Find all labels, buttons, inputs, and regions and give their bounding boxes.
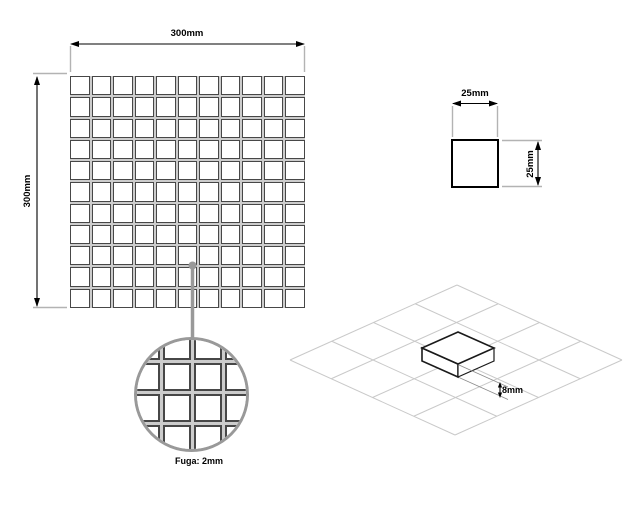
tile-cell (178, 119, 198, 138)
tile-cell (156, 140, 176, 159)
tile-cell (92, 182, 112, 201)
tile-cell (199, 97, 219, 116)
tile-cell (156, 204, 176, 223)
tile-cell (92, 97, 112, 116)
tile-cell (113, 119, 133, 138)
tile-cell (178, 289, 198, 308)
tile-cell (113, 267, 133, 286)
tile-cell (285, 182, 305, 201)
tile-cell (178, 204, 198, 223)
tile-cell (199, 140, 219, 159)
tile-height-label: 25mm (525, 134, 537, 194)
tile-cell (135, 140, 155, 159)
tile-cell (285, 267, 305, 286)
thickness-label: 8mm (502, 384, 523, 396)
tile-cell (264, 182, 284, 201)
tile-cell (134, 337, 160, 360)
tile-cell (156, 97, 176, 116)
tile-cell (113, 246, 133, 265)
tile-cell (156, 289, 176, 308)
tile-cell (135, 161, 155, 180)
thickness-dimension (459, 365, 508, 400)
sheet-width-dimension (71, 44, 305, 72)
tile-cell (163, 363, 191, 391)
tile-cell (285, 76, 305, 95)
tile-cell (70, 204, 90, 223)
sheet-width-label: 300mm (147, 28, 227, 40)
tile-cell (70, 267, 90, 286)
tile-cell (113, 161, 133, 180)
tile-cell (70, 289, 90, 308)
tile-cell (135, 76, 155, 95)
tile-cell (92, 140, 112, 159)
tile-cell (242, 225, 262, 244)
tile-cell (178, 140, 198, 159)
tile-cell (178, 76, 198, 95)
tile-cell (221, 97, 241, 116)
tile-cell (194, 337, 222, 360)
tile-cell (134, 394, 160, 422)
tile-cell (225, 337, 249, 360)
tile-cell (92, 289, 112, 308)
tile-cell (113, 140, 133, 159)
tile-cell (221, 289, 241, 308)
tile-cell (242, 267, 262, 286)
tile-cell (264, 140, 284, 159)
tile-cell (135, 97, 155, 116)
tile-cell (178, 161, 198, 180)
isometric-tile-box (422, 332, 494, 377)
tile-cell (92, 76, 112, 95)
tile-cell (285, 119, 305, 138)
grout-detail-grid (134, 337, 249, 452)
tile-cell (264, 267, 284, 286)
tile-cell (199, 119, 219, 138)
tile-cell (242, 246, 262, 265)
tile-cell (135, 225, 155, 244)
tile-cell (199, 161, 219, 180)
tile-cell (134, 363, 160, 391)
tile-cell (163, 394, 191, 422)
tile-cell (134, 425, 160, 452)
tile-cell (264, 246, 284, 265)
tile-cell (264, 161, 284, 180)
tile-cell (242, 289, 262, 308)
tile-width-label: 25mm (445, 88, 505, 100)
tile-cell (285, 161, 305, 180)
tile-cell (242, 140, 262, 159)
tile-cell (70, 182, 90, 201)
tile-cell (156, 161, 176, 180)
tile-cell (285, 204, 305, 223)
tile-cell (199, 225, 219, 244)
tile-cell (221, 161, 241, 180)
tile-cell (113, 289, 133, 308)
tile-cell (178, 97, 198, 116)
tile-cell (285, 246, 305, 265)
tile-cell (92, 161, 112, 180)
tile-cell (135, 182, 155, 201)
tile-cell (242, 204, 262, 223)
tile-cell (135, 267, 155, 286)
tile-cell (199, 289, 219, 308)
tile-cell (156, 246, 176, 265)
sheet-height-label: 300mm (22, 161, 34, 221)
tile-cell (113, 76, 133, 95)
tile-cell (285, 97, 305, 116)
tile-cell (242, 182, 262, 201)
tile-cell (242, 97, 262, 116)
tile-cell (70, 76, 90, 95)
tile-cell (242, 76, 262, 95)
tile-cell (178, 225, 198, 244)
tile-cell (225, 425, 249, 452)
tile-cell (194, 394, 222, 422)
tile-cell (163, 337, 191, 360)
tile-cell (163, 425, 191, 452)
tile-cell (285, 140, 305, 159)
tile-cell (156, 225, 176, 244)
tile-cell (156, 76, 176, 95)
tile-cell (194, 363, 222, 391)
tile-cell (113, 225, 133, 244)
tile-cell (156, 119, 176, 138)
tile-cell (178, 182, 198, 201)
mosaic-spec-diagram: 300mm 300mm 25mm 25mm Fuga: 2mm 8mm (0, 0, 640, 512)
tile-cell (70, 140, 90, 159)
sheet-height-dimension (33, 74, 67, 308)
grout-detail-magnifier (134, 337, 249, 452)
tile-cell (92, 225, 112, 244)
tile-cell (135, 119, 155, 138)
tile-cell (199, 182, 219, 201)
tile-cell (225, 394, 249, 422)
tile-cell (70, 246, 90, 265)
tile-cell (113, 97, 133, 116)
tile-cell (264, 97, 284, 116)
tile-cell (225, 363, 249, 391)
tile-cell (199, 204, 219, 223)
tile-cell (221, 225, 241, 244)
tile-cell (113, 204, 133, 223)
tile-cell (92, 246, 112, 265)
tile-cell (178, 267, 198, 286)
tile-cell (221, 267, 241, 286)
tile-cell (264, 119, 284, 138)
grout-label: Fuga: 2mm (139, 455, 259, 467)
tile-cell (221, 204, 241, 223)
tile-cell (264, 225, 284, 244)
tile-cell (92, 119, 112, 138)
tile-cell (264, 76, 284, 95)
tile-cell (113, 182, 133, 201)
tile-cell (194, 425, 222, 452)
tile-cell (199, 76, 219, 95)
tile-cell (156, 182, 176, 201)
tile-cell (221, 182, 241, 201)
tile-cell (70, 225, 90, 244)
tile-cell (221, 76, 241, 95)
tile-cell (156, 267, 176, 286)
tile-cell (135, 246, 155, 265)
tile-cell (221, 140, 241, 159)
tile-cell (135, 289, 155, 308)
tile-cell (70, 161, 90, 180)
tile-cell (70, 119, 90, 138)
tile-cell (70, 97, 90, 116)
tile-cell (178, 246, 198, 265)
tile-cell (285, 225, 305, 244)
mosaic-sheet-grid (70, 76, 305, 308)
tile-cell (221, 246, 241, 265)
tile-cell (285, 289, 305, 308)
tile-cell (92, 267, 112, 286)
tile-cell (199, 246, 219, 265)
tile-cell (242, 119, 262, 138)
tile-cell (135, 204, 155, 223)
tile-cell (264, 204, 284, 223)
tile-cell (92, 204, 112, 223)
tile-cell (264, 289, 284, 308)
tile-cell (199, 267, 219, 286)
isometric-floor-grid (290, 285, 622, 435)
tile-cell (242, 161, 262, 180)
tile-cell (221, 119, 241, 138)
